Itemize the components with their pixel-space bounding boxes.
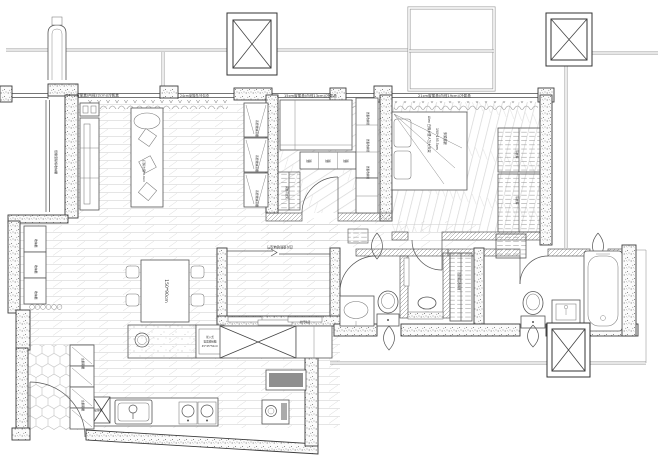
- wall-master-right: [540, 95, 552, 245]
- bed2-cabinet-column: 層板收納櫃 層板收納櫃 層板收納櫃: [356, 98, 378, 213]
- swing-door-lens: [384, 326, 395, 350]
- tv-cabinets: 系統收納高櫃 系統收納高櫃 系統收納高櫃: [244, 103, 268, 207]
- toilet2: [521, 292, 545, 348]
- bay-outline: [409, 8, 494, 90]
- wall-left-lower: [8, 221, 20, 313]
- curtain-label-left2: 24cm窗簾盒/冷氣盒: [180, 93, 210, 98]
- dining-chair: [126, 294, 139, 306]
- wall-bed2-master: [380, 95, 392, 221]
- tatami-door-label: 四片連動玻璃拉門: [267, 245, 293, 250]
- side-cab-label: 收納櫃: [34, 265, 38, 274]
- bed2-cab-label: 層板收納櫃: [366, 166, 370, 179]
- shower-room: [404, 258, 443, 319]
- pillow: [394, 119, 411, 147]
- wall-tatami-left: [217, 248, 227, 322]
- table-size-label: 150*90cm: [163, 279, 169, 302]
- bed2: [280, 100, 352, 150]
- shoe-cab-label: 玄關鞋櫃: [81, 400, 85, 411]
- column-top-left: [227, 13, 277, 75]
- kitchen-island: 崁入式 電器收納櫃 45*45*50cm: [128, 325, 224, 358]
- dining-chair: [191, 266, 204, 278]
- partition-bed2-b: [338, 213, 392, 221]
- door-leaf: [404, 258, 409, 286]
- duct-cap: [52, 17, 62, 25]
- entry-hex-floor: [20, 345, 78, 433]
- island-label-1: 崁入式: [206, 335, 214, 339]
- island-label-3: 45*45*50cm: [202, 344, 219, 348]
- exterior-duct: [48, 25, 66, 80]
- floor-plan: 24cm窗簾盒(內徑22cm)/冷氣盒 24cm窗簾盒/冷氣盒 15cm窗簾盒(…: [0, 0, 660, 465]
- partition-shower-right: [443, 253, 450, 318]
- linen-closet: 浴室備品收納櫃: [450, 253, 472, 321]
- tv-cab-label: 系統收納高櫃: [255, 190, 259, 207]
- living-floor: [78, 103, 266, 218]
- drawer-label: 抽屜: [343, 159, 349, 163]
- shoe-cabinets: 玄關鞋櫃 玄關鞋櫃: [70, 345, 94, 429]
- pillow: [394, 151, 411, 179]
- wall-jog: [16, 310, 30, 350]
- tall-cabinet-x: [220, 326, 332, 358]
- hang-rod-label: 吊衣桿: [515, 150, 519, 159]
- dining-chair: [126, 266, 139, 278]
- hall-cabinet: [348, 229, 368, 243]
- kitchen-counter: 捲門電器櫃: [88, 397, 218, 426]
- bench-label: 低檯度臥榻收納櫃: [54, 150, 59, 174]
- curtain-label-right: 21cm窗簾盒(內徑19cm)/冷氣盒: [418, 93, 471, 98]
- wall-bath-bottom-b: [401, 324, 520, 336]
- side-cab-label: 收納櫃: [34, 291, 38, 300]
- wall-pier: [0, 86, 12, 102]
- dining-chair: [191, 294, 204, 306]
- wall-entry-left: [16, 348, 28, 430]
- sofa-label: 訂製沙發310cm: [142, 160, 147, 182]
- partition-bath-top-a: [356, 249, 448, 256]
- sliding-panel: [258, 320, 292, 325]
- wall-bath-right: [622, 245, 636, 336]
- sliding-panel: [228, 317, 262, 322]
- partition-bed2-a: [266, 213, 302, 221]
- bathtub: [584, 251, 622, 331]
- wall-tatami-right: [330, 248, 340, 322]
- left-window: [46, 100, 50, 212]
- vanity2: [552, 300, 580, 324]
- partition-hall-a: [392, 232, 408, 240]
- sofa: 訂製沙發310cm: [131, 108, 163, 207]
- wall-bath-divider: [474, 248, 484, 324]
- drawers: 抽屜 抽屜 抽屜: [300, 152, 356, 169]
- bed2-closet: 開放吊衣架: [278, 172, 300, 210]
- drawer-label: 抽屜: [325, 159, 331, 163]
- bed2-cab-label: 層板收納櫃: [366, 139, 370, 152]
- small-sink: [418, 297, 436, 309]
- curtain-label-mid: 15cm窗簾盒(內徑13cm)/冷氣盒: [284, 93, 337, 98]
- bed-name-label: Alex 白橡木雙人加大床架: [427, 116, 432, 153]
- bed-size-label: 190*195.5cm: [435, 128, 439, 150]
- wall-kitchen-bottom: [86, 430, 318, 454]
- wall-pier: [160, 86, 178, 98]
- column-top-right: [546, 13, 592, 66]
- floor-plan-page: 24cm窗簾盒(內徑22cm)/冷氣盒 24cm窗簾盒/冷氣盒 15cm窗簾盒(…: [0, 0, 660, 465]
- shoe-cab-label: 玄關鞋櫃: [81, 358, 85, 369]
- drawer-label: 抽屜: [306, 159, 312, 163]
- tv-cab-label: 系統收納高櫃: [255, 120, 259, 137]
- linen-label: 浴室備品收納櫃: [457, 272, 461, 291]
- wall-entry-jamb: [12, 428, 30, 440]
- right-boundary: [636, 250, 646, 363]
- curtain-label-left: 24cm窗簾盒(內徑22cm)/冷氣盒: [66, 92, 119, 97]
- closet2-label: 開放吊衣架: [285, 186, 289, 199]
- toilet1: [377, 291, 399, 326]
- side-cab-label: 收納櫃: [34, 239, 38, 248]
- tv-cab-label: 系統收納高櫃: [255, 155, 259, 172]
- wall-left-upper: [65, 95, 78, 218]
- island-label-2: 電器收納櫃: [204, 340, 217, 344]
- shower-curb: [408, 312, 443, 319]
- curtain-master: [394, 101, 538, 110]
- bed-note-label: 床頭靠牆: [443, 132, 448, 146]
- column-bottom-right: [547, 323, 590, 377]
- track-label: 拉門軌道: [300, 320, 311, 324]
- hang-rod-label: 吊衣桿: [515, 196, 519, 205]
- bed2-cab-label: 層板收納櫃: [366, 112, 370, 125]
